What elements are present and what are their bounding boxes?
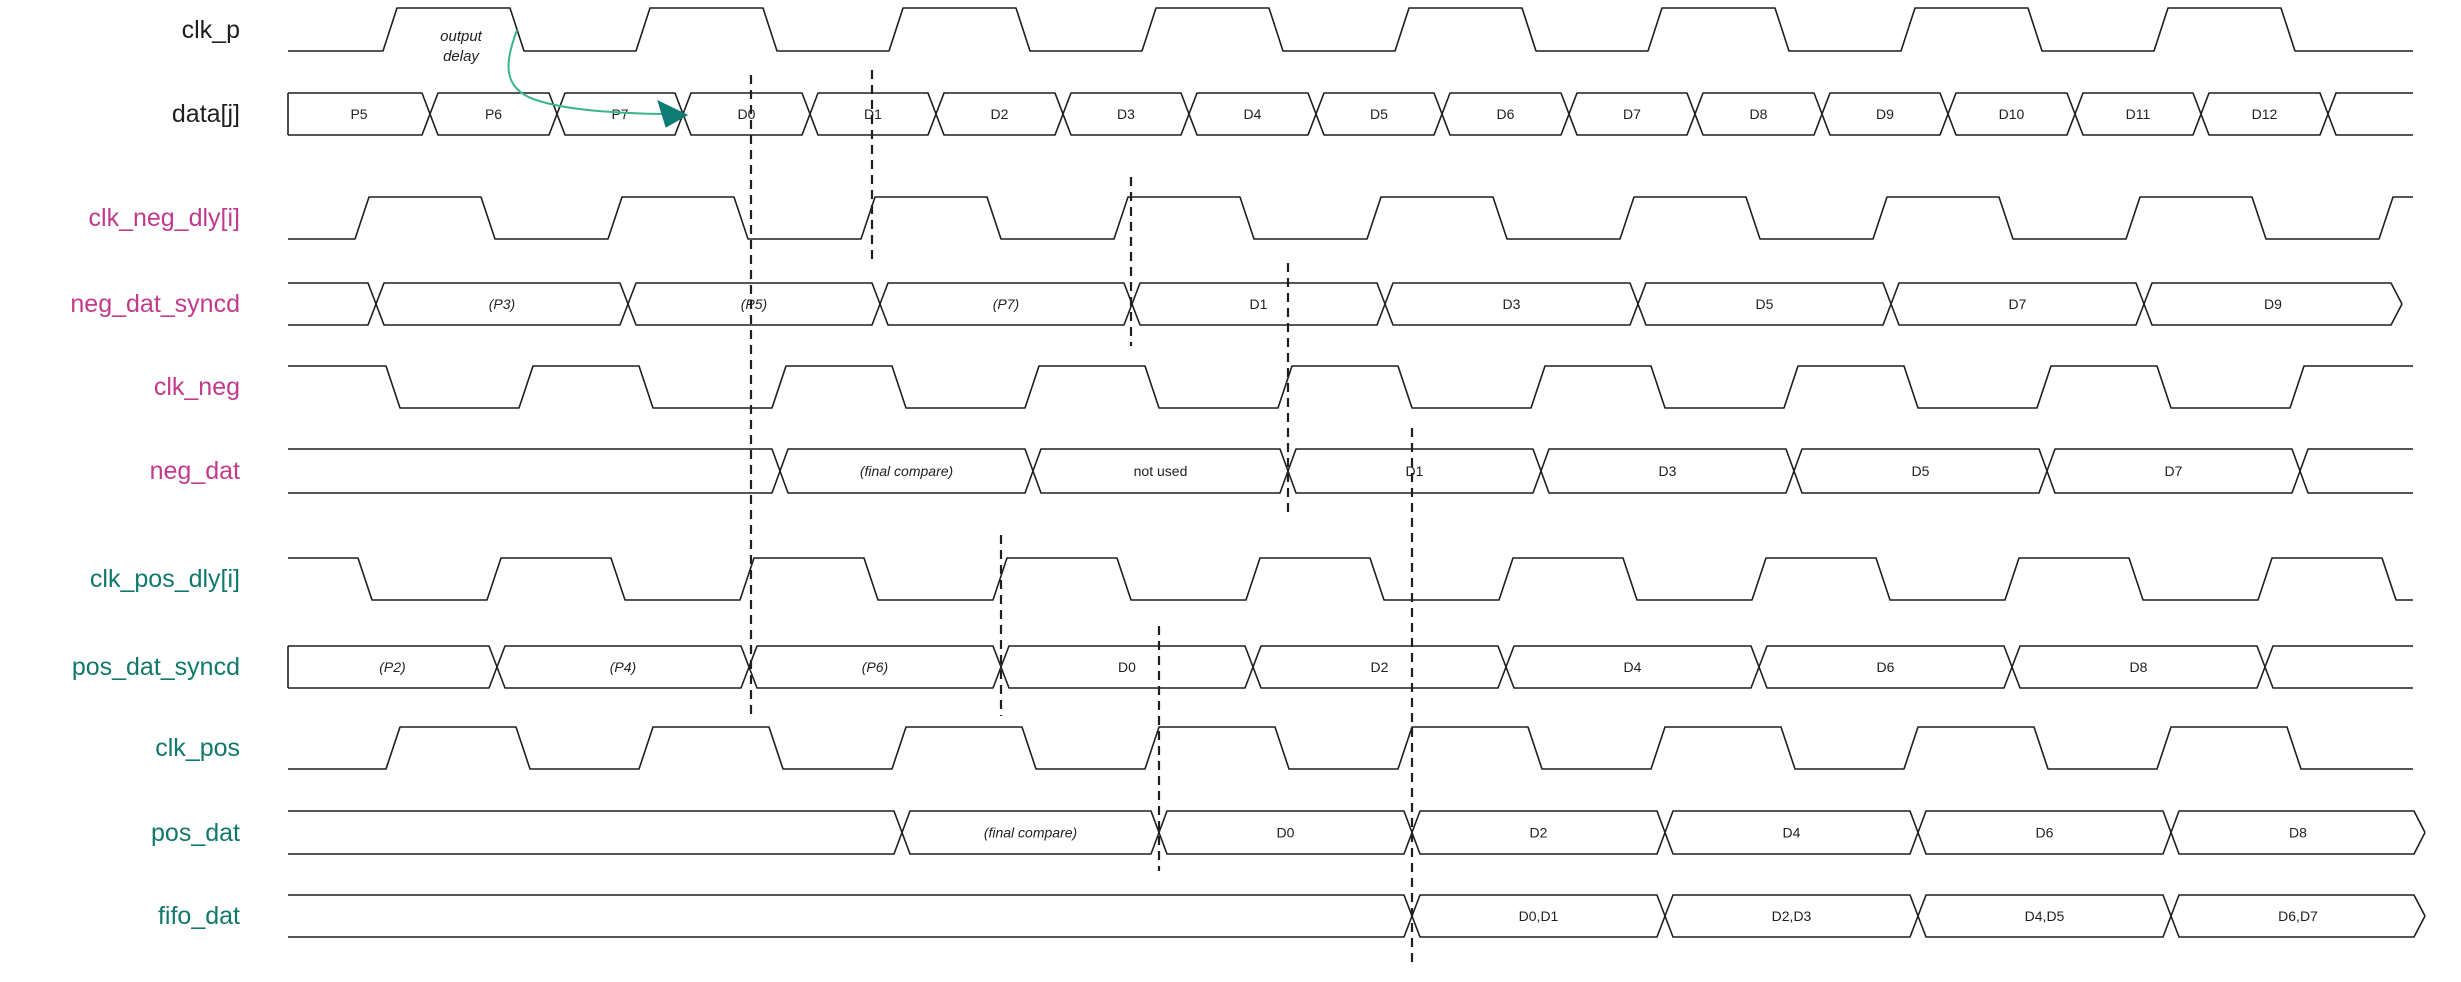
bus-value-label: D7 xyxy=(1623,106,1641,122)
clock-wave xyxy=(288,558,2413,600)
waveform-fifo_dat: D0,D1D2,D3D4,D5D6,D7 xyxy=(288,895,2425,937)
waveform-clk_neg_dly[i] xyxy=(288,197,2413,239)
bus-rail xyxy=(288,895,2425,937)
clock-wave xyxy=(288,366,2413,408)
clock-wave xyxy=(288,8,2413,51)
bus-value-label: D8 xyxy=(2130,659,2148,675)
bus-value-label: D2 xyxy=(991,106,1009,122)
bus-value-label: D1 xyxy=(1406,463,1424,479)
bus-rail xyxy=(288,449,2413,493)
bus-value-label: D0 xyxy=(1118,659,1136,675)
signal-label-pos-dat-syncd: pos_dat_syncd xyxy=(0,652,240,682)
bus-value-label: D7 xyxy=(2165,463,2183,479)
clock-wave xyxy=(288,727,2413,769)
bus-rail xyxy=(288,283,2402,325)
bus-rail xyxy=(288,811,2425,854)
bus-value-label: D6 xyxy=(2036,825,2054,841)
bus-value-label: D8 xyxy=(2289,825,2307,841)
bus-value-label: D0 xyxy=(1277,825,1295,841)
bus-value-label: D8 xyxy=(1750,106,1768,122)
waveform-clk_p xyxy=(288,8,2413,51)
bus-value-label: D10 xyxy=(1999,106,2025,122)
bus-value-label: D3 xyxy=(1117,106,1135,122)
bus-value-label: P7 xyxy=(611,106,628,122)
waveform-data[j]: P5P6P7D0D1D2D3D4D5D6D7D8D9D10D11D12 xyxy=(288,93,2413,135)
signal-label-clk-p: clk_p xyxy=(0,15,240,45)
signal-label-data-j: data[j] xyxy=(0,99,240,129)
bus-value-label: D7 xyxy=(2009,296,2027,312)
bus-value-label: D9 xyxy=(2264,296,2282,312)
bus-value-label: D1 xyxy=(1250,296,1268,312)
signal-label-neg-dat: neg_dat xyxy=(0,456,240,486)
bus-value-label: D0,D1 xyxy=(1519,908,1559,924)
output-delay-text: output xyxy=(440,28,483,45)
bus-rail xyxy=(288,895,2425,937)
bus-value-label: (P2) xyxy=(379,659,405,675)
waveform-neg_dat: (final compare)not usedD1D3D5D7 xyxy=(288,449,2413,493)
bus-value-label: D1 xyxy=(864,106,882,122)
signal-label-clk-pos-dly: clk_pos_dly[i] xyxy=(0,564,240,594)
bus-value-label: (P6) xyxy=(862,659,888,675)
bus-value-label: D9 xyxy=(1876,106,1894,122)
bus-value-label: D4,D5 xyxy=(2025,908,2065,924)
output-delay-arrowhead-icon xyxy=(658,101,687,127)
bus-value-label: D12 xyxy=(2252,106,2278,122)
signal-label-clk-neg: clk_neg xyxy=(0,372,240,402)
bus-value-label: D4 xyxy=(1783,825,1801,841)
waveform-pos_dat_syncd: (P2)(P4)(P6)D0D2D4D6D8 xyxy=(288,646,2413,688)
bus-value-label: (final compare) xyxy=(860,463,953,479)
output-delay-text: delay xyxy=(443,48,480,65)
bus-value-label: P6 xyxy=(485,106,502,122)
bus-value-label: D2,D3 xyxy=(1772,908,1812,924)
bus-rail xyxy=(288,811,2425,854)
signal-label-fifo-dat: fifo_dat xyxy=(0,901,240,931)
signal-label-clk-neg-dly: clk_neg_dly[i] xyxy=(0,203,240,233)
waveform-clk_pos_dly[i] xyxy=(288,558,2413,600)
clock-wave xyxy=(288,197,2413,239)
bus-rail xyxy=(288,449,2413,493)
waveform-pos_dat: (final compare)D0D2D4D6D8 xyxy=(288,811,2425,854)
signal-label-neg-dat-syncd: neg_dat_syncd xyxy=(0,289,240,319)
bus-value-label: D4 xyxy=(1624,659,1642,675)
bus-value-label: D6 xyxy=(1877,659,1895,675)
bus-value-label: D3 xyxy=(1503,296,1521,312)
bus-value-label: (P4) xyxy=(610,659,636,675)
bus-value-label: P5 xyxy=(350,106,367,122)
bus-value-label: D0 xyxy=(738,106,756,122)
waveform-neg_dat_syncd: (P3)(P5)(P7)D1D3D5D7D9 xyxy=(288,283,2402,325)
bus-value-label: D6,D7 xyxy=(2278,908,2318,924)
bus-value-label: D5 xyxy=(1756,296,1774,312)
waveform-clk_pos xyxy=(288,727,2413,769)
bus-value-label: (P3) xyxy=(489,296,515,312)
bus-value-label: not used xyxy=(1134,463,1188,479)
bus-value-label: (final compare) xyxy=(984,825,1077,841)
bus-rail xyxy=(288,646,2413,688)
bus-value-label: D2 xyxy=(1530,825,1548,841)
bus-value-label: (P7) xyxy=(993,296,1019,312)
waveform-canvas: P5P6P7D0D1D2D3D4D5D6D7D8D9D10D11D12(P3)(… xyxy=(0,0,2461,982)
bus-value-label: D3 xyxy=(1659,463,1677,479)
output-delay-annotation: outputdelay xyxy=(440,28,687,127)
waveform-clk_neg xyxy=(288,366,2413,408)
bus-rail xyxy=(288,93,2413,135)
signal-label-clk-pos: clk_pos xyxy=(0,733,240,763)
dashed-markers xyxy=(751,70,1412,965)
bus-rail xyxy=(288,283,2402,325)
bus-value-label: D5 xyxy=(1370,106,1388,122)
bus-value-label: D2 xyxy=(1371,659,1389,675)
bus-value-label: D4 xyxy=(1244,106,1262,122)
timing-diagram: P5P6P7D0D1D2D3D4D5D6D7D8D9D10D11D12(P3)(… xyxy=(0,0,2461,982)
bus-rail xyxy=(288,646,2413,688)
bus-rail xyxy=(288,93,2413,135)
bus-value-label: D11 xyxy=(2126,106,2151,122)
bus-value-label: D6 xyxy=(1497,106,1515,122)
signal-label-pos-dat: pos_dat xyxy=(0,818,240,848)
bus-value-label: D5 xyxy=(1912,463,1930,479)
bus-value-label: (P5) xyxy=(741,296,767,312)
